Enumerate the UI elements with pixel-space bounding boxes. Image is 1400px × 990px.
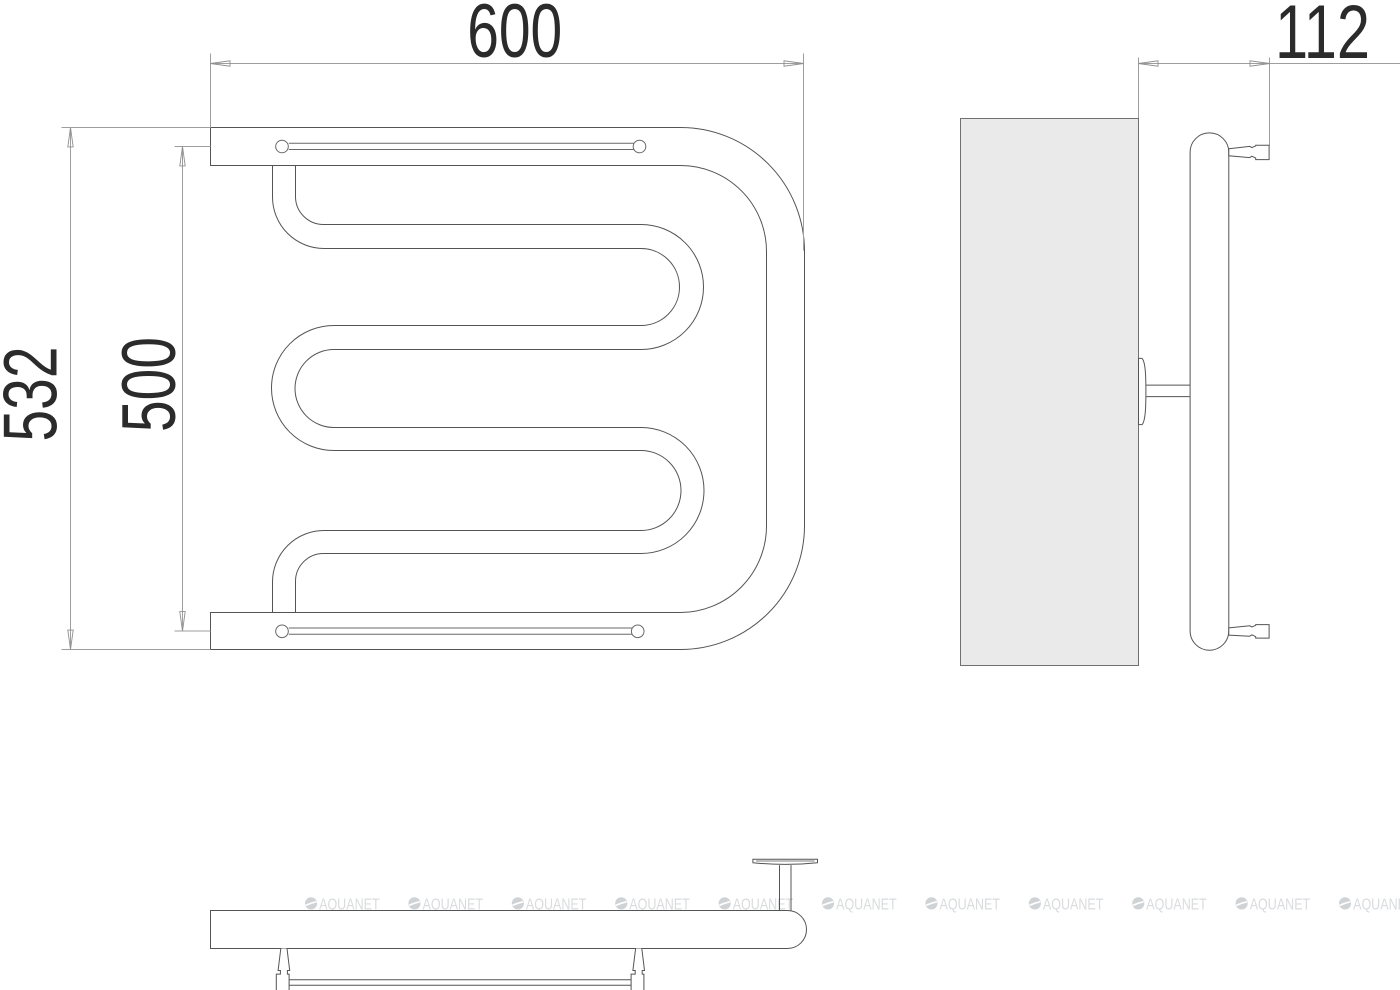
- svg-text:600: 600: [467, 0, 562, 74]
- svg-text:500: 500: [107, 337, 192, 432]
- svg-text:532: 532: [0, 347, 73, 442]
- svg-text:112: 112: [1275, 0, 1370, 75]
